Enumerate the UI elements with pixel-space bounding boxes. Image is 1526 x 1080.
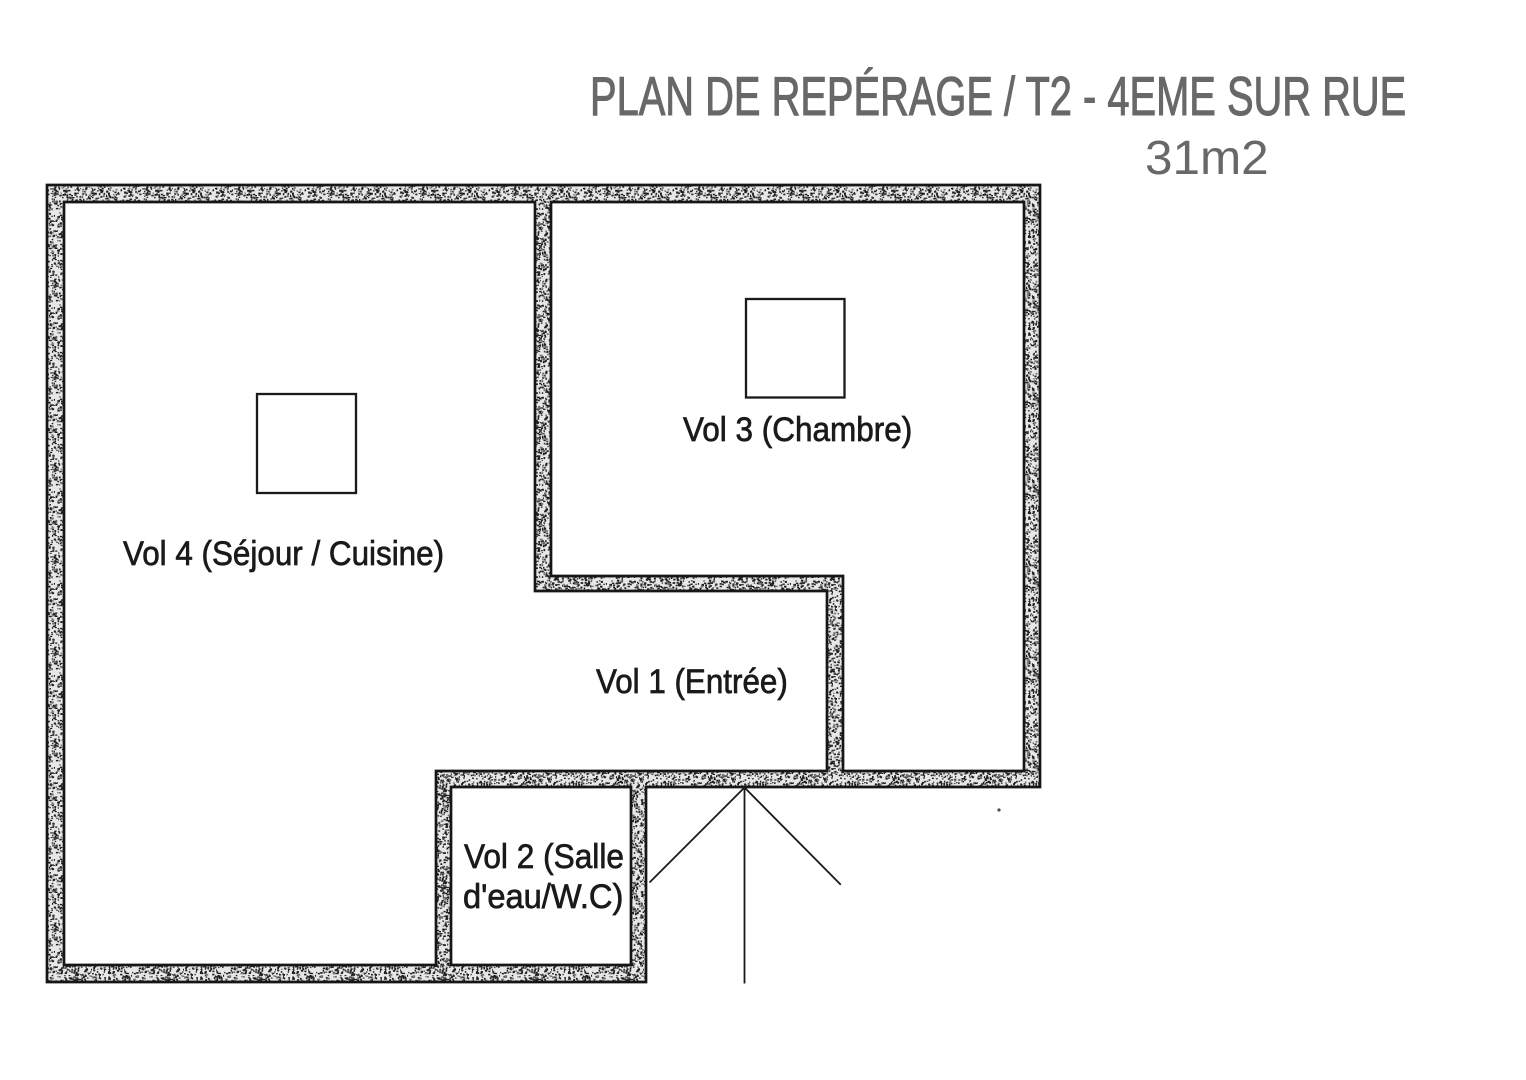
svg-text:Vol 3 (Chambre): Vol 3 (Chambre) — [683, 410, 912, 448]
svg-text:31m2: 31m2 — [1145, 132, 1269, 185]
svg-text:d'eau/W.C): d'eau/W.C) — [463, 878, 623, 916]
svg-text:Vol 1 (Entrée): Vol 1 (Entrée) — [596, 662, 788, 700]
svg-text:Vol 2 (Salle: Vol 2 (Salle — [464, 837, 624, 875]
svg-text:Vol 4 (Séjour / Cuisine): Vol 4 (Séjour / Cuisine) — [123, 534, 444, 572]
svg-text:PLAN DE REPÉRAGE / T2 - 4EME S: PLAN DE REPÉRAGE / T2 - 4EME SUR RUE — [590, 67, 1406, 128]
